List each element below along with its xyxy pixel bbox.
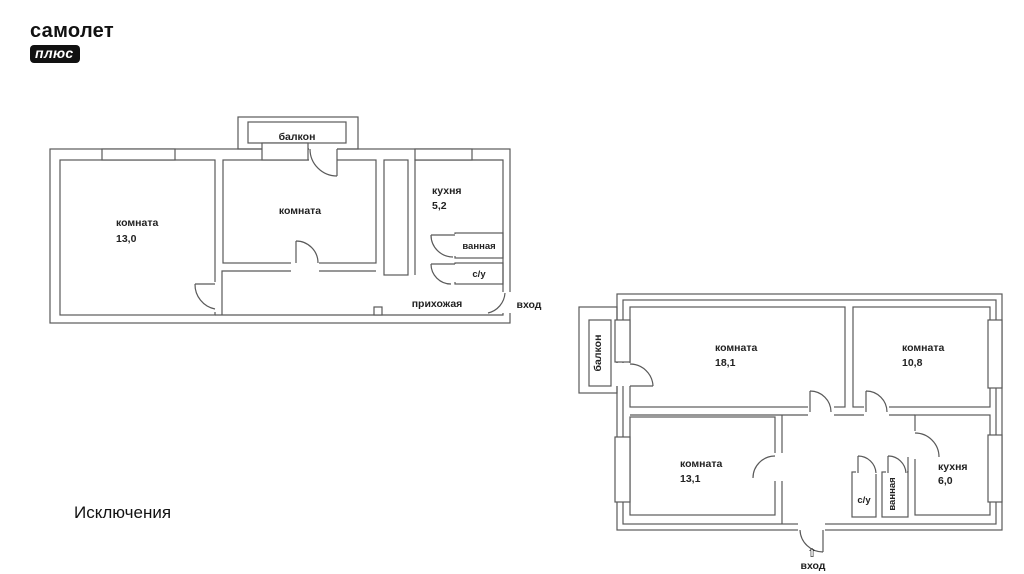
plan2-entrance-arrow-icon: ⇧ <box>807 546 817 560</box>
plan1-wc-label: с/у <box>472 269 486 280</box>
plan2-room-top-right-label: комната <box>902 342 944 354</box>
plan1-kitchen-area: 5,2 <box>432 200 447 212</box>
plan2-walls <box>579 294 1002 530</box>
slide-canvas: самолет плюс Исключения <box>0 0 1024 574</box>
plan2-kitchen-area: 6,0 <box>938 475 953 487</box>
plan2-room-bottom-left-label: комната <box>680 458 722 470</box>
plan2-room-top-right-area: 10,8 <box>902 357 923 369</box>
plan1-room-left-label: комната <box>116 217 158 229</box>
plan1-bathroom-label: ванная <box>462 241 495 252</box>
plan1-balcony-label: балкон <box>279 131 316 143</box>
plan2-kitchen-label: кухня <box>938 461 968 473</box>
plan2-entrance-label: вход <box>801 560 826 572</box>
plan1-room-center-label: комната <box>279 205 321 217</box>
plan1-entrance-label: вход <box>517 299 542 311</box>
plan2-wc-label: с/у <box>857 495 871 506</box>
plan1-hallway-label: прихожая <box>412 298 463 310</box>
plan2-balcony-label: балкон <box>592 335 604 372</box>
plan2-room-top-left-area: 18,1 <box>715 357 736 369</box>
floor-plan-2: балкон комната 18,1 комната 10,8 комната… <box>579 294 1002 572</box>
plan2-door-openings <box>614 363 917 532</box>
plan2-room-top-left-label: комната <box>715 342 757 354</box>
plan2-room-bottom-left-area: 13,1 <box>680 473 701 485</box>
plan1-kitchen-label: кухня <box>432 185 462 197</box>
floor-plan-1: балкон комната 13,0 комната кухня 5,2 ва… <box>50 117 542 323</box>
plan1-doors <box>195 149 505 313</box>
plan2-bathroom-label: ванная <box>887 477 898 510</box>
floor-plans-graphic: балкон комната 13,0 комната кухня 5,2 ва… <box>0 0 1024 574</box>
plan1-room-left-area: 13,0 <box>116 233 137 245</box>
plan1-door-openings <box>213 146 512 313</box>
plan1-windows <box>102 143 472 315</box>
